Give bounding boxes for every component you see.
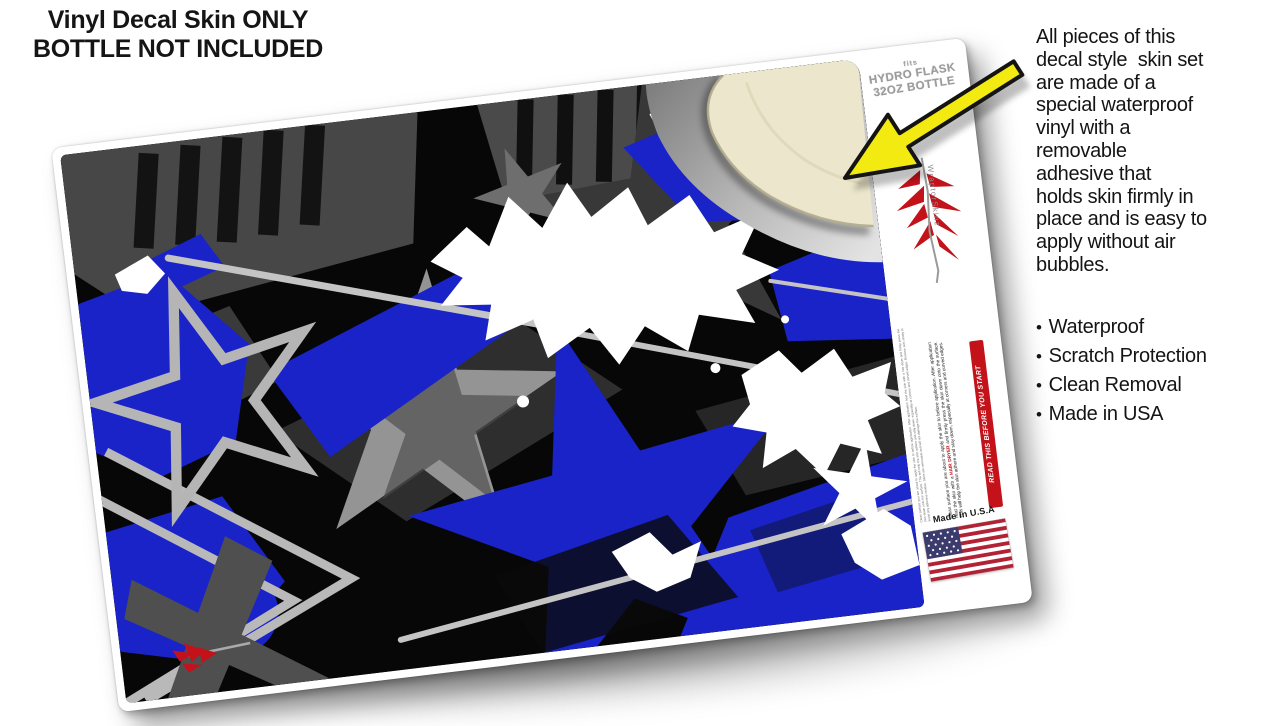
info-line: decal style skin set [1036, 49, 1264, 72]
info-line: adhesive that [1036, 163, 1264, 186]
feature-item: •Clean Removal [1036, 371, 1264, 400]
artwork-graphic [60, 59, 924, 704]
note-line-2: BOTTLE NOT INCLUDED [28, 35, 328, 64]
wraptorskinz-logo-icon: WraptorSkinz [888, 148, 970, 293]
decal-skin-card: fits Hydro Flask 32oz Bottle WraptorSkin… [51, 38, 1033, 712]
product-image: Vinyl Decal Skin ONLY BOTTLE NOT INCLUDE… [0, 0, 1280, 726]
info-line: removable [1036, 140, 1264, 163]
bullet-icon: • [1036, 405, 1042, 424]
info-paragraph: All pieces of this decal style skin set … [1036, 26, 1264, 277]
feature-list: •Waterproof •Scratch Protection •Clean R… [1036, 313, 1264, 429]
info-line: apply without air [1036, 231, 1264, 254]
feature-item: •Made in USA [1036, 400, 1264, 429]
info-line: vinyl with a [1036, 117, 1264, 140]
info-line: special waterproof [1036, 94, 1264, 117]
info-line: place and is easy to [1036, 208, 1264, 231]
bullet-icon: • [1036, 318, 1042, 337]
info-panel: All pieces of this decal style skin set … [1036, 26, 1264, 429]
info-line: holds skin firmly in [1036, 186, 1264, 209]
info-line: All pieces of this [1036, 26, 1264, 49]
fits-label: fits Hydro Flask 32oz Bottle [867, 54, 959, 100]
bullet-icon: • [1036, 376, 1042, 395]
us-flag-icon [922, 518, 1013, 582]
bullet-icon: • [1036, 347, 1042, 366]
decal-artwork [60, 59, 924, 704]
header-note: Vinyl Decal Skin ONLY BOTTLE NOT INCLUDE… [28, 6, 328, 64]
feature-item: •Waterproof [1036, 313, 1264, 342]
feature-item: •Scratch Protection [1036, 342, 1264, 371]
note-line-1: Vinyl Decal Skin ONLY [28, 6, 328, 35]
info-line: are made of a [1036, 72, 1264, 95]
info-line: bubbles. [1036, 254, 1264, 277]
